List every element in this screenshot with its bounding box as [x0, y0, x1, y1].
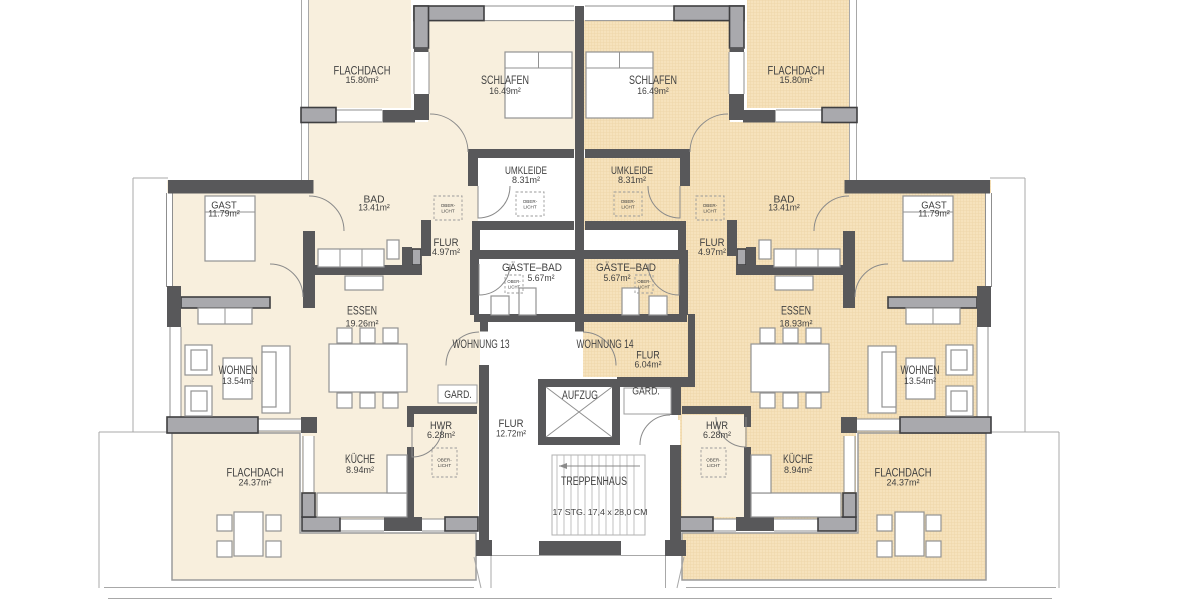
svg-text:OBER-: OBER- — [637, 279, 651, 284]
svg-text:5.67m²: 5.67m² — [528, 272, 555, 283]
svg-text:24.37m²: 24.37m² — [887, 477, 920, 488]
svg-text:11.79m²: 11.79m² — [208, 208, 240, 219]
svg-text:16.49m²: 16.49m² — [637, 85, 669, 96]
svg-text:AUFZUG: AUFZUG — [562, 390, 598, 402]
svg-text:6.28m²: 6.28m² — [703, 429, 731, 440]
svg-text:12.72m²: 12.72m² — [496, 428, 526, 439]
svg-text:6.04m²: 6.04m² — [635, 359, 662, 370]
svg-text:17 STG. 17,4 x 28,0 CM: 17 STG. 17,4 x 28,0 CM — [553, 507, 648, 517]
svg-text:TREPPENHAUS: TREPPENHAUS — [561, 476, 627, 488]
svg-text:OBER-: OBER- — [523, 199, 538, 204]
svg-text:WOHNUNG 14: WOHNUNG 14 — [577, 337, 634, 351]
svg-text:4.97m²: 4.97m² — [432, 246, 460, 257]
svg-text:LICHT: LICHT — [703, 209, 716, 214]
svg-text:16.49m²: 16.49m² — [489, 85, 521, 96]
svg-text:OBER-: OBER- — [507, 279, 521, 284]
svg-text:OBER-: OBER- — [437, 458, 452, 463]
svg-text:GARD.: GARD. — [444, 389, 472, 401]
svg-text:13.41m²: 13.41m² — [358, 202, 390, 213]
svg-text:15.80m²: 15.80m² — [346, 74, 379, 85]
svg-text:OBER-: OBER- — [621, 199, 636, 204]
svg-text:19.26m²: 19.26m² — [346, 318, 379, 329]
svg-text:OBER-: OBER- — [706, 458, 721, 463]
svg-text:LICHT: LICHT — [508, 285, 521, 290]
svg-text:6.28m²: 6.28m² — [427, 429, 455, 440]
svg-text:LICHT: LICHT — [638, 285, 651, 290]
svg-text:5.67m²: 5.67m² — [604, 272, 631, 283]
svg-text:GARD.: GARD. — [632, 386, 660, 398]
svg-text:13.54m²: 13.54m² — [222, 375, 254, 386]
svg-text:LICHT: LICHT — [438, 463, 451, 468]
svg-text:8.31m²: 8.31m² — [618, 174, 646, 185]
svg-text:LICHT: LICHT — [621, 205, 634, 210]
svg-text:LICHT: LICHT — [441, 209, 454, 214]
svg-text:WOHNUNG 13: WOHNUNG 13 — [453, 337, 510, 351]
svg-text:8.94m²: 8.94m² — [346, 464, 374, 475]
svg-text:8.94m²: 8.94m² — [784, 464, 812, 475]
svg-text:ESSEN: ESSEN — [347, 304, 377, 318]
svg-text:13.54m²: 13.54m² — [904, 375, 936, 386]
svg-text:15.80m²: 15.80m² — [780, 74, 813, 85]
svg-text:4.97m²: 4.97m² — [698, 246, 726, 257]
svg-text:11.79m²: 11.79m² — [918, 208, 950, 219]
svg-text:OBER-: OBER- — [703, 203, 718, 208]
svg-text:LICHT: LICHT — [523, 205, 536, 210]
svg-text:8.31m²: 8.31m² — [512, 174, 540, 185]
svg-text:24.37m²: 24.37m² — [239, 477, 272, 488]
svg-text:ESSEN: ESSEN — [781, 304, 811, 318]
svg-text:13.41m²: 13.41m² — [768, 202, 800, 213]
svg-text:LICHT: LICHT — [707, 463, 720, 468]
svg-text:OBER-: OBER- — [441, 203, 456, 208]
svg-text:18.93m²: 18.93m² — [780, 318, 813, 329]
